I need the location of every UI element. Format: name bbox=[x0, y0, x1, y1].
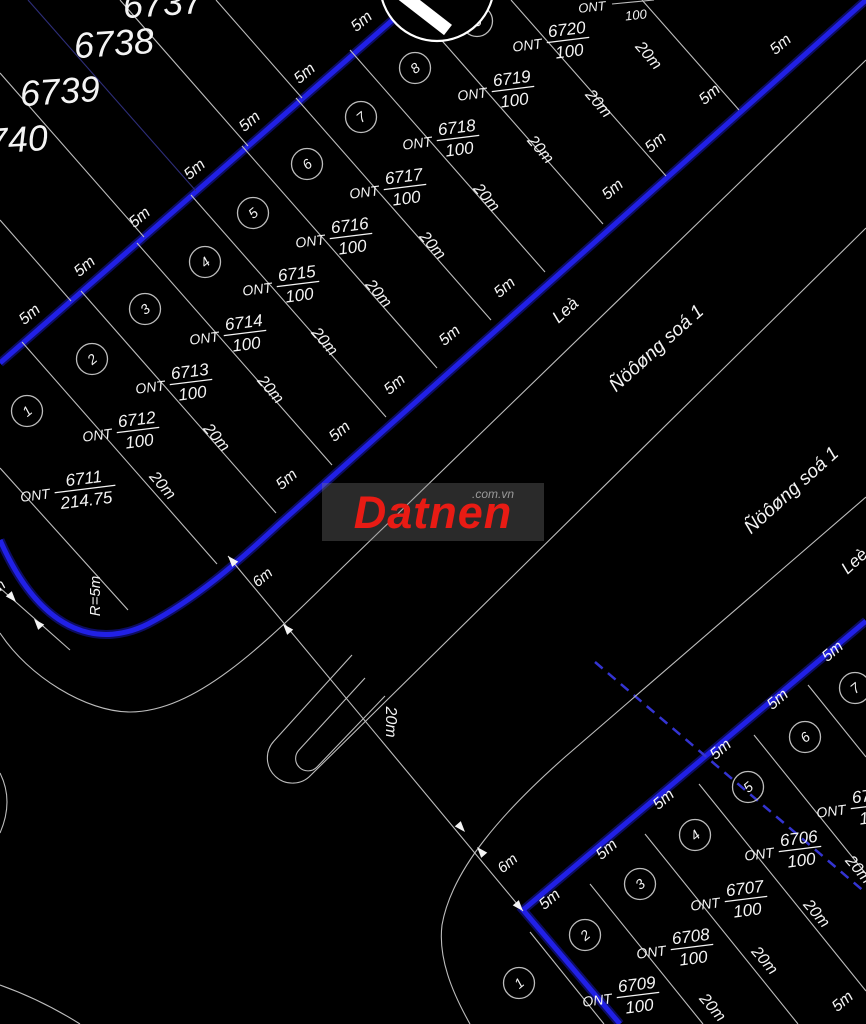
boundary-line bbox=[645, 834, 798, 1024]
plot-id-numerator: 6706 bbox=[779, 827, 819, 851]
dimension-label: ONT bbox=[577, 0, 607, 16]
ont-prefix: ONT bbox=[743, 844, 776, 864]
badge-number: 7 bbox=[847, 679, 864, 697]
parcel-number-badge: 7 bbox=[346, 102, 377, 133]
dimension-label: 20m bbox=[253, 372, 287, 407]
dimension-label: R=5m bbox=[87, 576, 104, 616]
parcel-number-badge: 3 bbox=[130, 294, 161, 325]
dimension-label: 5m bbox=[348, 8, 376, 35]
badge-number: 4 bbox=[197, 253, 213, 270]
plot-area-denominator: 100 bbox=[284, 284, 315, 306]
plot-number-label: 6740 bbox=[0, 117, 49, 163]
dimension-label: 20m bbox=[523, 132, 557, 167]
ont-area-label: ONT6714100 bbox=[187, 311, 269, 361]
parcel-number-badge: 6 bbox=[790, 722, 821, 753]
dimension-label: 5m bbox=[381, 371, 409, 398]
dimension-label: 5m bbox=[326, 418, 354, 445]
ont-area-label: ONT6716100 bbox=[293, 214, 375, 264]
plot-area-denominator: 100 bbox=[231, 333, 262, 355]
dimension-label: 5m bbox=[273, 466, 301, 493]
plot-area-denominator: 100 bbox=[444, 138, 475, 160]
plot-area-denominator: 100 bbox=[177, 382, 208, 404]
ont-area-label: ONT6715100 bbox=[240, 262, 322, 312]
parcel-number-badge: 2 bbox=[570, 920, 601, 951]
street-name-label: Leè bbox=[837, 545, 866, 578]
badge-number: 4 bbox=[687, 826, 703, 843]
badge-number: 7 bbox=[353, 108, 370, 126]
dimension-label: 5m bbox=[642, 129, 670, 156]
boundary-line bbox=[612, 0, 654, 4]
dimension-label: 5m bbox=[696, 81, 724, 108]
plot-id-numerator: 6717 bbox=[384, 165, 424, 189]
ont-area-label: ONT6720100 bbox=[510, 18, 592, 68]
parcel-number-badge: 1 bbox=[504, 968, 535, 999]
street-name-label: Ñöôøng soá 1 bbox=[740, 442, 843, 538]
ont-area-label: ONT6711214.75 bbox=[18, 465, 118, 517]
badge-number: 2 bbox=[576, 926, 593, 944]
plot-id-numerator: 6719 bbox=[492, 67, 532, 91]
ont-prefix: ONT bbox=[511, 35, 544, 55]
dimension-label: 20m bbox=[695, 990, 729, 1024]
dimension-label: 20m bbox=[361, 276, 395, 311]
dimension-label: 6m bbox=[494, 850, 521, 876]
road-1-front-edge bbox=[0, 0, 866, 634]
plot-id-numerator: 6720 bbox=[547, 18, 587, 42]
ont-area-label: ONT6709100 bbox=[580, 973, 662, 1023]
dimension-label: 20m bbox=[469, 180, 503, 215]
ont-prefix: ONT bbox=[348, 182, 381, 202]
dimension-label: 5m bbox=[650, 786, 678, 813]
parcel-number-badge: 8 bbox=[400, 53, 431, 84]
dimension-label: 20m bbox=[415, 228, 449, 263]
plot-area-denominator: 100 bbox=[499, 89, 530, 111]
plot-area-denominator: 100 bbox=[786, 849, 817, 871]
plot-area-denominator: 100 bbox=[554, 40, 585, 62]
dimension-label: 20m bbox=[382, 705, 399, 737]
ont-area-label: ONT6713100 bbox=[133, 360, 215, 410]
boundary-line bbox=[216, 0, 302, 98]
dimension-label: 5m bbox=[593, 836, 621, 863]
badge-number: 1 bbox=[511, 974, 527, 991]
dimension-label: 20m bbox=[581, 86, 615, 121]
ont-area-label: ONT6719100 bbox=[455, 67, 537, 117]
road-1-front-edge-glow bbox=[0, 0, 866, 634]
dimension-label: 20m bbox=[145, 468, 179, 503]
dimension-label: 20m bbox=[199, 420, 233, 455]
ont-prefix: ONT bbox=[188, 328, 221, 348]
street-name-label: Leà bbox=[548, 294, 582, 327]
left-edge-arc bbox=[0, 773, 7, 833]
plot-area-denominator: 100 bbox=[858, 806, 866, 828]
parcel-number-badge: 5 bbox=[238, 198, 269, 229]
dimension-arrow bbox=[31, 616, 44, 630]
plot-number-label: 6739 bbox=[18, 68, 101, 114]
ont-prefix: ONT bbox=[815, 801, 848, 821]
plot-area-denominator: 100 bbox=[678, 947, 709, 969]
ont-area-label: ONT6706100 bbox=[742, 827, 824, 877]
ont-area-label: ONT6707100 bbox=[688, 877, 770, 927]
ont-area-label: ONT6705100 bbox=[814, 784, 866, 834]
badge-number: 6 bbox=[299, 155, 315, 172]
dimension-label: 5m bbox=[491, 274, 519, 301]
dimension-label: 20m bbox=[307, 324, 341, 359]
plot-number-label: 6738 bbox=[72, 20, 155, 66]
dimension-arrow bbox=[455, 821, 468, 835]
cadastral-map: 67376738673967405m5m5m5m5m5m5m5m5m5m5m5m… bbox=[0, 0, 866, 1024]
parcel-number-badge: 3 bbox=[625, 869, 656, 900]
dimension-label: 5m bbox=[767, 31, 795, 58]
ont-prefix: ONT bbox=[294, 231, 327, 251]
ont-area-label: ONT6718100 bbox=[400, 116, 482, 166]
ont-area-label: ONT6712100 bbox=[80, 408, 162, 458]
badge-number: 5 bbox=[740, 778, 756, 795]
plot-id-numerator: 6709 bbox=[617, 973, 657, 997]
parcel-number-badge: 1 bbox=[12, 396, 43, 427]
plot-area-denominator: 100 bbox=[732, 899, 763, 921]
boundary-line bbox=[530, 932, 604, 1024]
badge-number: 5 bbox=[245, 204, 261, 221]
ont-prefix: ONT bbox=[241, 279, 274, 299]
ont-prefix: ONT bbox=[19, 485, 52, 505]
dimension-label: 5m bbox=[599, 176, 627, 203]
bottom-left-arc bbox=[0, 985, 80, 1024]
plot-area-denominator: 100 bbox=[337, 236, 368, 258]
dimension-label: 20m bbox=[631, 38, 665, 73]
plot-id-numerator: 6714 bbox=[224, 311, 264, 334]
plot-id-numerator: 6712 bbox=[117, 408, 157, 432]
ont-prefix: ONT bbox=[635, 942, 668, 962]
plot-id-numerator: 6715 bbox=[277, 262, 317, 286]
plot-id-numerator: 6707 bbox=[725, 877, 765, 901]
plot-id-numerator: 6713 bbox=[170, 360, 210, 384]
street-name-label: Ñöôøng soá 1 bbox=[605, 300, 708, 396]
plot-area-denominator: 100 bbox=[391, 187, 422, 209]
ont-prefix: ONT bbox=[689, 894, 722, 914]
badge-number: 2 bbox=[83, 350, 100, 368]
parcel-number-badge: 6 bbox=[292, 149, 323, 180]
plot-id-numerator: 6716 bbox=[330, 214, 370, 238]
plot-area-denominator: 100 bbox=[624, 995, 655, 1017]
badge-number: 6 bbox=[797, 728, 813, 745]
ont-prefix: ONT bbox=[401, 133, 434, 153]
plot-id-numerator: 6711 bbox=[64, 467, 103, 490]
ont-prefix: ONT bbox=[134, 377, 167, 397]
ont-area-label: ONT6708100 bbox=[634, 925, 716, 975]
dimension-label: 20m bbox=[747, 943, 781, 978]
dimension-label: 5m bbox=[436, 322, 464, 349]
badge-number: 3 bbox=[137, 300, 153, 317]
dimension-label: 5m bbox=[829, 988, 857, 1015]
parcel-number-badge: 5 bbox=[733, 772, 764, 803]
ont-prefix: ONT bbox=[456, 84, 489, 104]
plot-id-numerator: 6708 bbox=[671, 925, 711, 949]
parcel-number-badge: 4 bbox=[190, 247, 221, 278]
parcel-number-badge: 7 bbox=[840, 673, 866, 704]
dimension-label: 100 bbox=[624, 6, 648, 23]
ont-area-label: ONT6717100 bbox=[347, 165, 429, 215]
badge-number: 3 bbox=[632, 875, 648, 892]
plot-id-numerator: 6705 bbox=[851, 784, 866, 808]
dimension-label: 6m bbox=[0, 576, 9, 602]
plot-area-denominator: 100 bbox=[124, 430, 155, 452]
plot-id-numerator: 6718 bbox=[437, 116, 477, 140]
badge-number: 8 bbox=[407, 59, 423, 76]
parcel-number-badge: 4 bbox=[680, 820, 711, 851]
parcel-number-badge: 2 bbox=[77, 344, 108, 375]
badge-number: 1 bbox=[19, 402, 35, 419]
boundary-line bbox=[0, 220, 71, 301]
dimension-label: 20m bbox=[841, 852, 866, 887]
